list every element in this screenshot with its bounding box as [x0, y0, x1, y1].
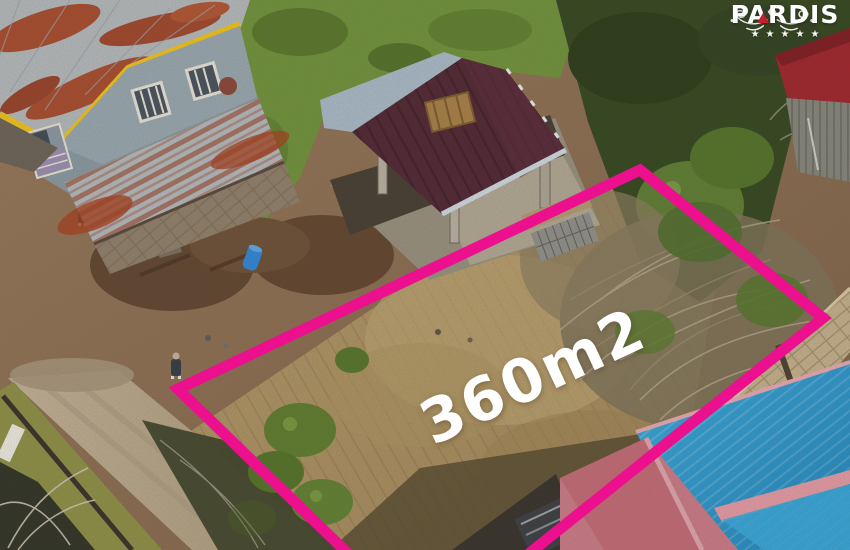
aerial-photo	[0, 0, 850, 550]
aerial-photo-listing: 360m2 PARDIS ★★★★★	[0, 0, 850, 550]
